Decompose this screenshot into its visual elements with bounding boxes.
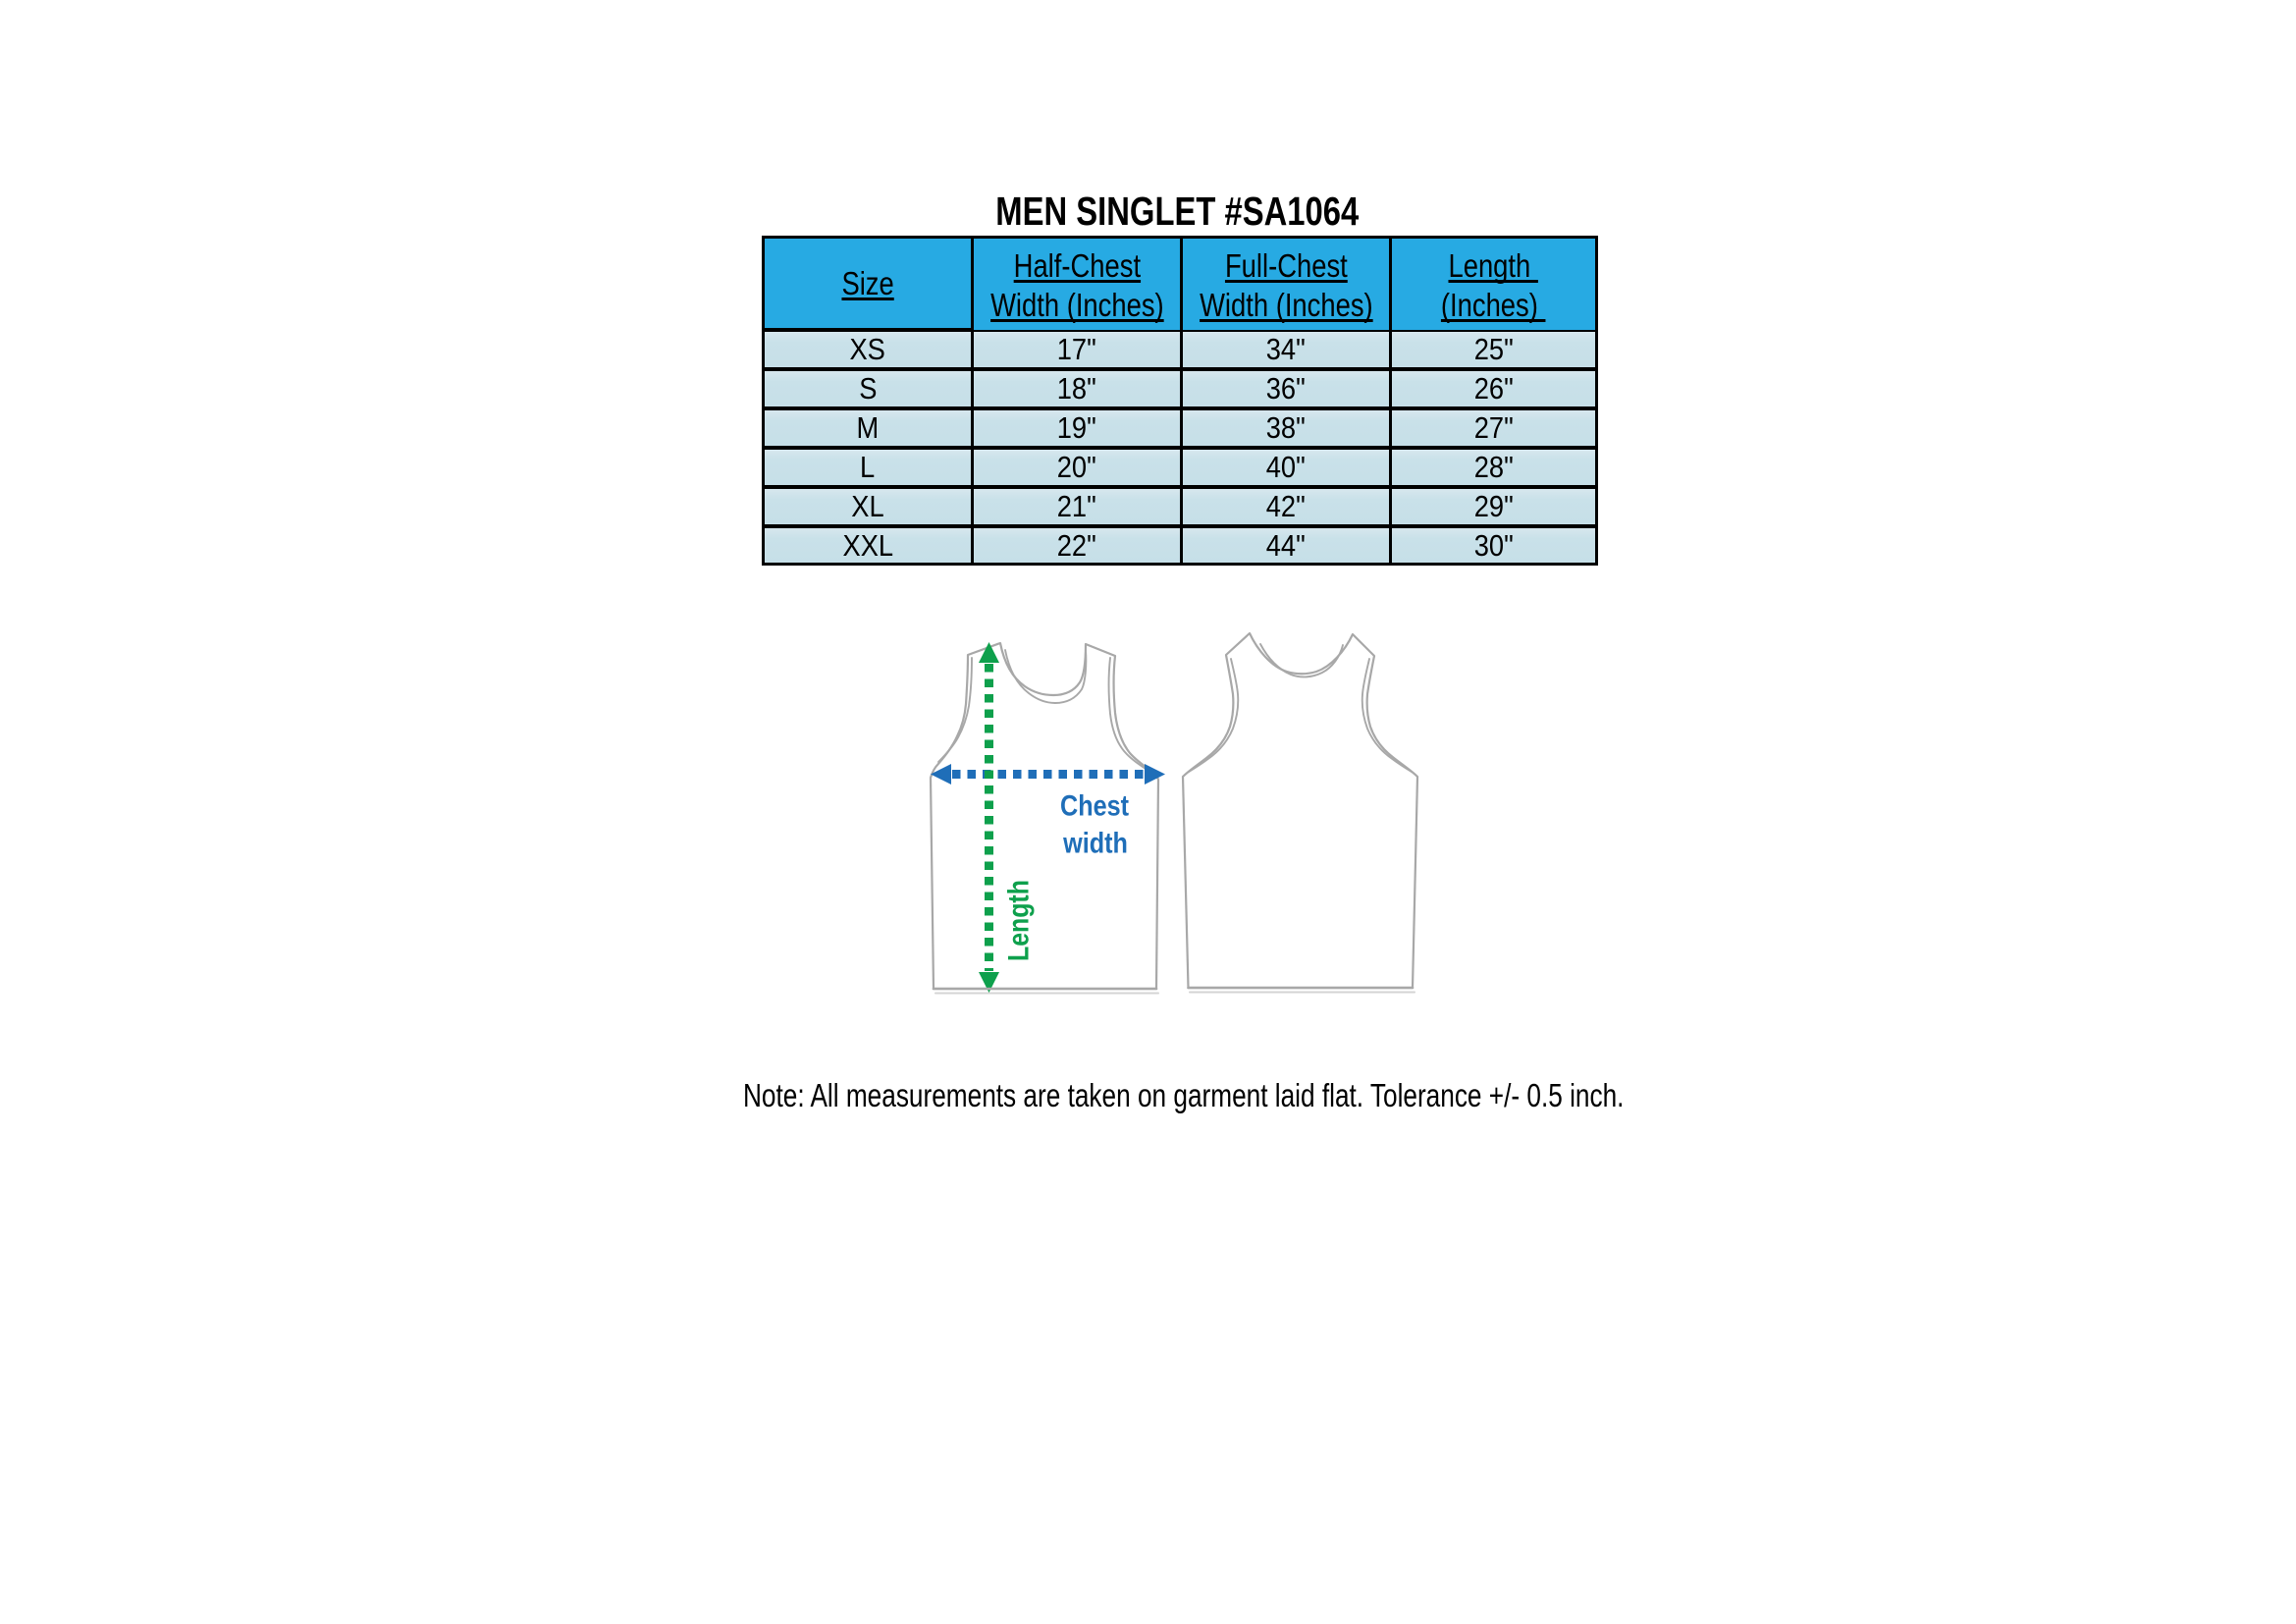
svg-text:Length: Length bbox=[1001, 880, 1035, 961]
svg-text:width: width bbox=[1062, 826, 1128, 859]
svg-text:Chest: Chest bbox=[1060, 788, 1129, 822]
